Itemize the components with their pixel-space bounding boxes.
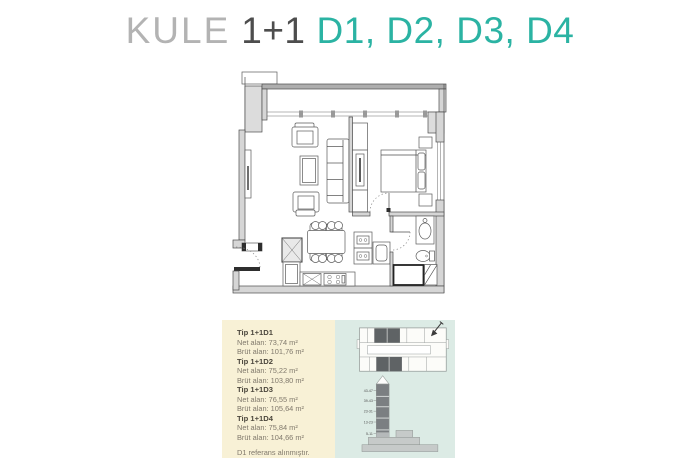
nightstand (419, 137, 432, 148)
bathroom-door-arc (392, 232, 410, 250)
unit-name: Tip 1+1D4 (237, 414, 273, 423)
unit-name: Tip 1+1D3 (237, 385, 273, 394)
info-panel: Tip 1+1D1 Net alan: 73,74 m² Brüt alan: … (222, 320, 455, 458)
armchair (292, 123, 318, 147)
unit-name: Tip 1+1D2 (237, 357, 273, 366)
title-unit-list: D1, D2, D3, D4 (317, 10, 575, 51)
entrance-door-leaf (234, 267, 260, 271)
unit-net-area: Net alan: 75,22 m² (237, 366, 335, 376)
sink (303, 274, 321, 286)
balcony (242, 72, 446, 132)
nightstand (419, 194, 432, 206)
shaft-column (245, 86, 262, 132)
shower-tray (394, 265, 424, 285)
tower-floor-label: 23-31 (364, 410, 373, 414)
living-room-furniture (292, 123, 349, 216)
unit-net-area: Net alan: 76,55 m² (237, 395, 335, 405)
unit-net-area: Net alan: 75,84 m² (237, 423, 335, 433)
tower-diagrams: 43-47 39-43 23-31 13-23 5-11 (335, 320, 455, 458)
stove (324, 274, 346, 286)
dining-table (308, 231, 346, 254)
reference-footnote: D1 referans alınmıştır. (237, 448, 335, 457)
coffee-table (300, 156, 318, 185)
tower-floor-label: 13-23 (364, 421, 373, 425)
service-shaft (282, 238, 302, 262)
sofa (327, 139, 349, 203)
corner-unit (425, 265, 438, 286)
tower-podium (362, 430, 438, 451)
wardrobe (349, 117, 368, 212)
unit-spec-block: Tip 1+1D2 Net alan: 75,22 m² Brüt alan: … (237, 357, 335, 386)
bathroom (390, 216, 437, 286)
entrance (233, 150, 262, 290)
tower-elevation: 43-47 39-43 23-31 13-23 5-11 (362, 376, 438, 452)
fridge (283, 262, 300, 286)
oven-column (354, 232, 372, 264)
unit-brut-area: Brüt alan: 103,80 m² (237, 376, 335, 386)
page-title: KULE1+1D1, D2, D3, D4 (0, 10, 700, 52)
unit-brut-area: Brüt alan: 104,66 m² (237, 433, 335, 443)
bedroom-door-arc (370, 193, 389, 212)
washbasin (416, 216, 434, 244)
unit-net-area: Net alan: 73,74 m² (237, 338, 335, 348)
unit-spec-block: Tip 1+1D3 Net alan: 76,55 m² Brüt alan: … (237, 385, 335, 414)
unit-brut-area: Brüt alan: 101,76 m² (237, 347, 335, 357)
window-mullions (299, 111, 427, 118)
tower-floor-label: 43-47 (364, 389, 373, 393)
floor-plan (228, 66, 450, 298)
unit-spec-block: Tip 1+1D1 Net alan: 73,74 m² Brüt alan: … (237, 328, 335, 357)
bed (381, 150, 426, 192)
unit-name: Tip 1+1D1 (237, 328, 273, 337)
unit-specs: Tip 1+1D1 Net alan: 73,74 m² Brüt alan: … (222, 320, 335, 458)
toilet (416, 251, 435, 262)
title-plan-type: 1+1 (241, 10, 305, 51)
unit-brut-area: Brüt alan: 105,64 m² (237, 404, 335, 414)
armchair (293, 192, 319, 216)
unit-spec-block: Tip 1+1D4 Net alan: 75,84 m² Brüt alan: … (237, 414, 335, 443)
tower-floor-label: 5-11 (366, 432, 373, 436)
dining-set (308, 222, 346, 263)
location-diagrams: 43-47 39-43 23-31 13-23 5-11 (335, 320, 455, 458)
title-building: KULE (126, 10, 231, 51)
page: KULE1+1D1, D2, D3, D4 (0, 0, 700, 466)
washing-machine (373, 242, 390, 264)
tower-floor-label: 39-43 (364, 399, 373, 403)
